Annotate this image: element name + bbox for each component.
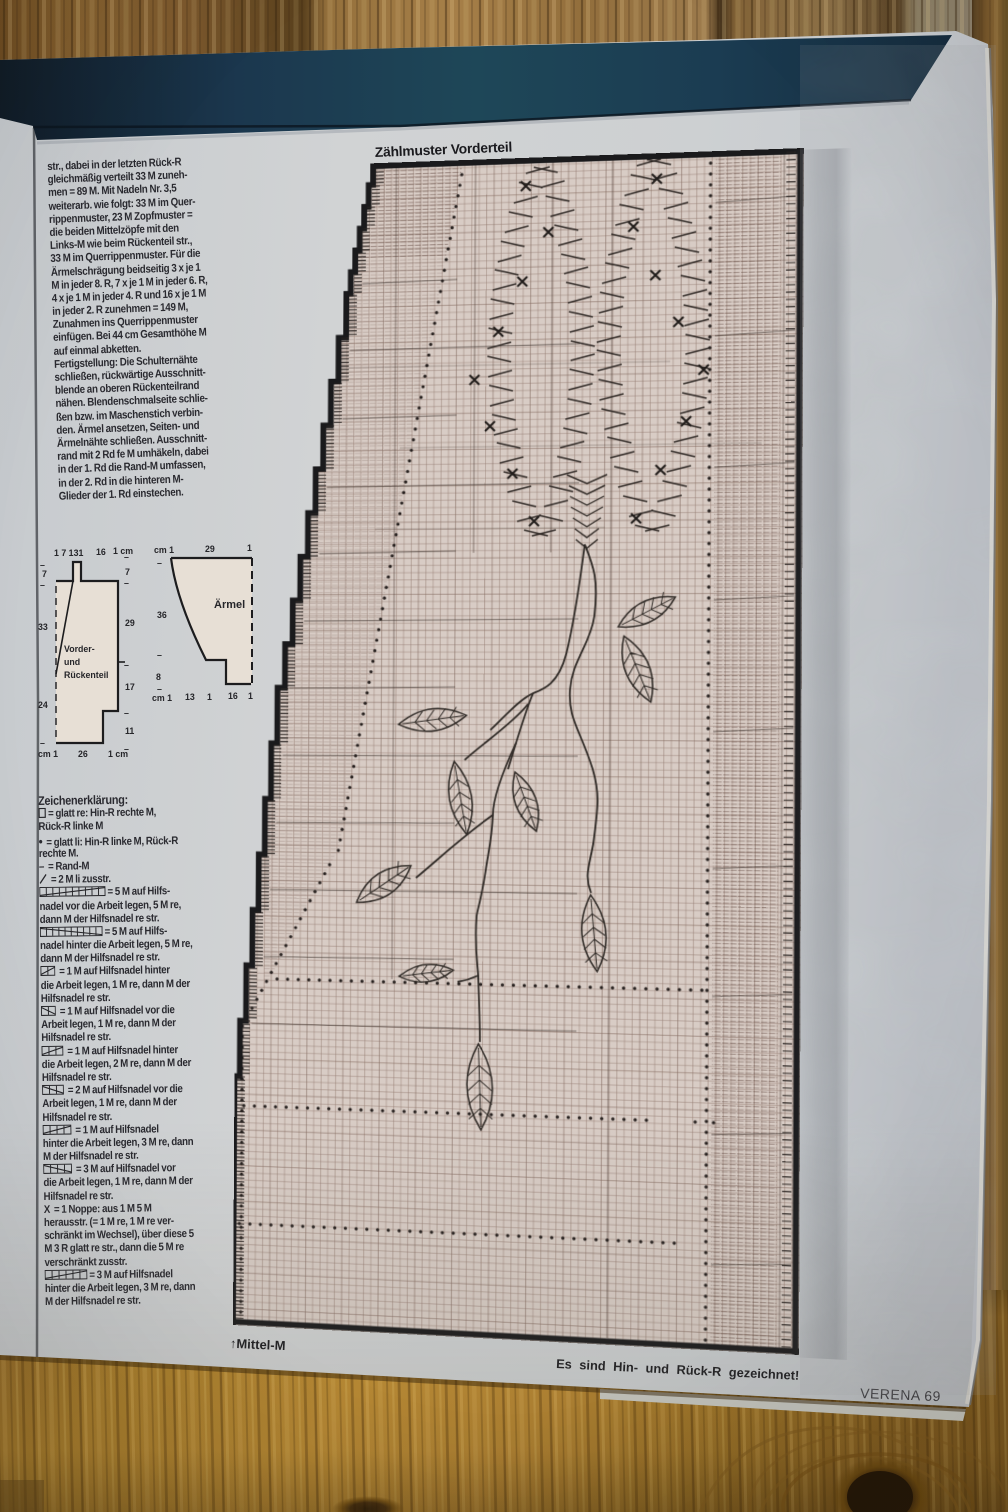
svg-text:Vorder-: Vorder-: [64, 644, 95, 654]
svg-text:cm 1: cm 1: [154, 545, 174, 555]
svg-text:und: und: [64, 657, 80, 667]
svg-text:7: 7: [125, 567, 130, 577]
svg-text:33: 33: [38, 622, 48, 632]
svg-text:↑Mittel-M: ↑Mittel-M: [230, 1336, 286, 1353]
svg-text:–: –: [124, 660, 129, 670]
svg-text:11: 11: [125, 726, 134, 736]
svg-text:1 cm: 1 cm: [108, 749, 128, 759]
svg-text:29: 29: [125, 618, 135, 628]
svg-text:16: 16: [96, 547, 106, 557]
svg-text:–: –: [157, 650, 162, 660]
svg-text:cm 1: cm 1: [38, 749, 58, 759]
svg-text:26: 26: [78, 749, 88, 759]
svg-text:7: 7: [42, 569, 47, 579]
svg-text:VERENA 69: VERENA 69: [860, 1385, 941, 1404]
svg-text:cm 1: cm 1: [152, 693, 172, 703]
svg-text:8: 8: [156, 672, 161, 682]
svg-text:–: –: [124, 552, 129, 562]
svg-text:13: 13: [185, 692, 195, 702]
svg-text:Rückenteil: Rückenteil: [64, 670, 109, 680]
svg-text:–: –: [40, 580, 45, 590]
svg-text:36: 36: [157, 610, 167, 620]
svg-text:1 7 131: 1 7 131: [54, 548, 83, 558]
svg-text:–: –: [40, 738, 45, 748]
svg-text:–: –: [157, 558, 162, 568]
svg-text:–: –: [124, 578, 129, 588]
svg-text:1: 1: [207, 692, 212, 702]
svg-text:–: –: [124, 708, 129, 718]
svg-text:29: 29: [205, 544, 215, 554]
svg-text:24: 24: [38, 700, 48, 710]
svg-text:17: 17: [125, 682, 135, 692]
